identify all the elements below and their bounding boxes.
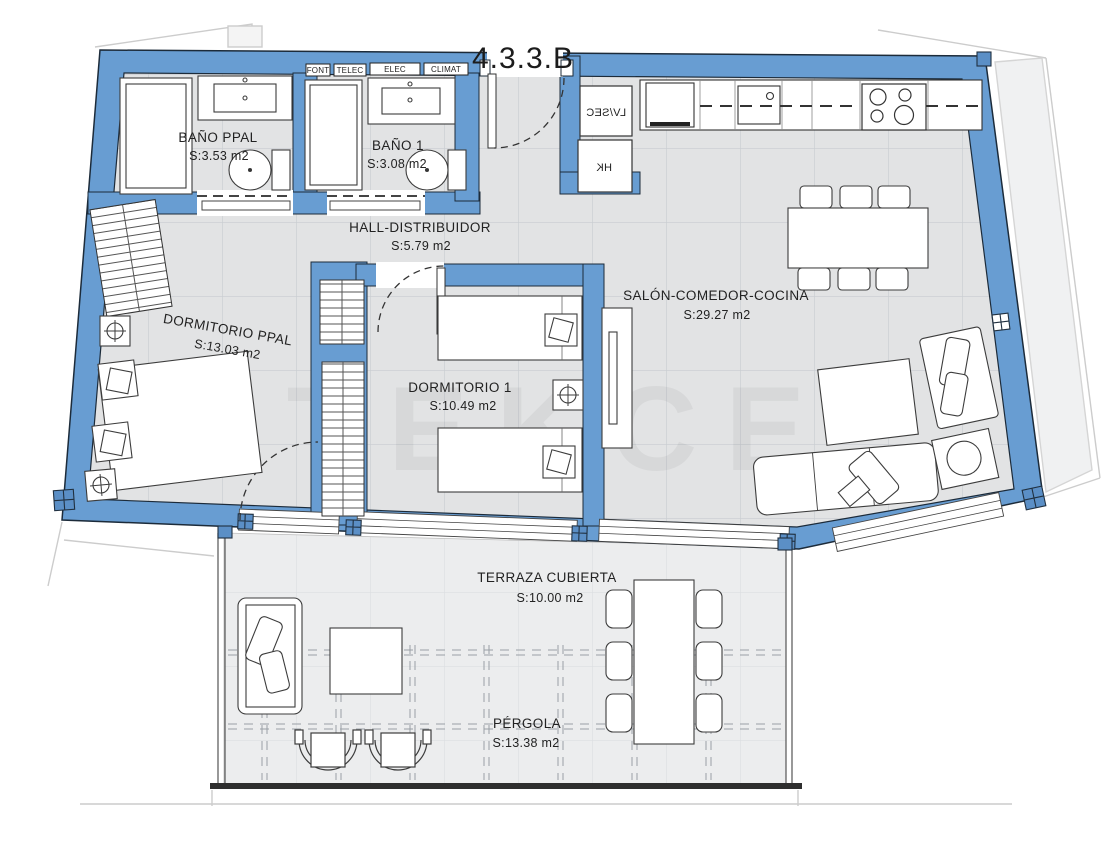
wardrobe-icon (322, 362, 364, 516)
tag-telec: TELEC (337, 66, 364, 75)
fridge-icon (646, 83, 694, 127)
floor-plan-svg: TEKCE (0, 0, 1114, 867)
terrace-dining-set-icon (606, 580, 722, 744)
area-dorm-1: S:10.49 m2 (430, 399, 497, 413)
label-hall: HALL-DISTRIBUIDOR (349, 220, 491, 235)
wardrobe-icon (320, 280, 364, 344)
bath1-sliding-door (327, 190, 425, 216)
area-salon: S:29.27 m2 (684, 308, 751, 322)
utility-tags: FONT TELEC ELEC CLIMAT (306, 63, 468, 76)
entrance-door-leaf (488, 74, 496, 148)
radiator-icon (85, 469, 118, 502)
washer-label: LV/SEC (586, 107, 626, 119)
area-bano-1: S:3.08 m2 (367, 157, 427, 171)
bathtub-icon (305, 80, 362, 190)
nightstand-icon (92, 422, 132, 462)
bath-ppal-sliding-door (197, 190, 293, 216)
nightstand-icon (545, 314, 577, 346)
dining-set-icon (788, 186, 928, 290)
area-bano-ppal: S:3.53 m2 (189, 149, 249, 163)
vanity-icon (198, 76, 292, 120)
label-bano-ppal: BAÑO PPAL (178, 130, 257, 145)
terrace-bottom-edge (210, 783, 802, 789)
area-pergola: S:13.38 m2 (493, 736, 560, 750)
tag-font: FONT (307, 66, 330, 75)
radiator-icon (100, 316, 130, 346)
radiator-icon (553, 380, 583, 410)
terrace-table-icon (330, 628, 402, 694)
area-hall: S:5.79 m2 (391, 239, 451, 253)
nightstand-icon (543, 446, 575, 478)
vanity-icon (368, 78, 455, 124)
label-dorm-1: DORMITORIO 1 (408, 380, 512, 395)
tag-climat: CLIMAT (431, 65, 461, 74)
label-terraza: TERRAZA CUBIERTA (477, 570, 616, 585)
label-pergola: PÉRGOLA (493, 716, 561, 731)
dorm1-door-opening (376, 262, 444, 288)
tv-unit-icon (602, 308, 632, 448)
label-bano-1: BAÑO 1 (372, 138, 424, 153)
plan-title: 4.3.3.B (472, 42, 574, 75)
wall-dorm1-east (583, 264, 604, 526)
washer-box: LV/SEC (580, 86, 632, 136)
area-terraza: S:10.00 m2 (517, 591, 584, 605)
coffee-table-icon (818, 359, 919, 446)
label-salon: SALÓN-COMEDOR-COCINA (623, 288, 809, 303)
floor-plan-page: TEKCE (0, 0, 1114, 867)
stove-icon (862, 84, 926, 130)
nightstand-icon (98, 360, 138, 400)
tag-elec: ELEC (384, 65, 406, 74)
lounge-chair-icon (238, 598, 302, 714)
water-heater-box: HK (578, 140, 632, 192)
water-heater-label: HK (596, 162, 612, 174)
